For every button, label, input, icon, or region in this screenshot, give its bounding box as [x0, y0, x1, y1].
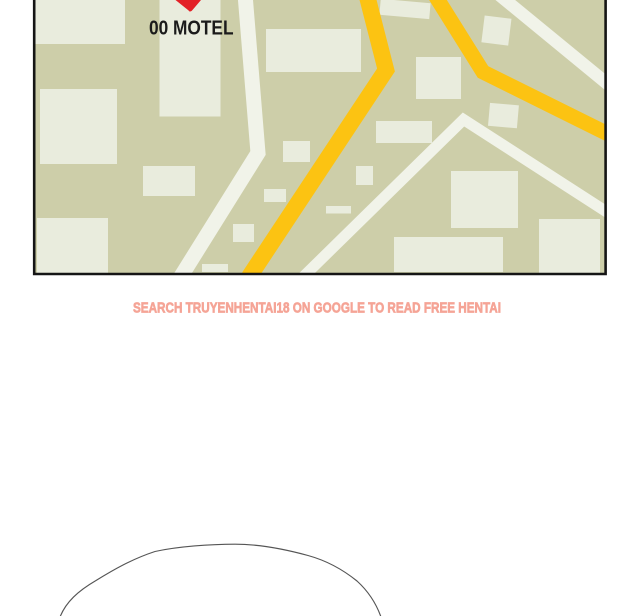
- svg-text:SEARCH TRUYENHENTAI18 ON GOOGL: SEARCH TRUYENHENTAI18 ON GOOGLE TO READ …: [133, 300, 501, 317]
- svg-text:00 MOTEL: 00 MOTEL: [149, 17, 234, 39]
